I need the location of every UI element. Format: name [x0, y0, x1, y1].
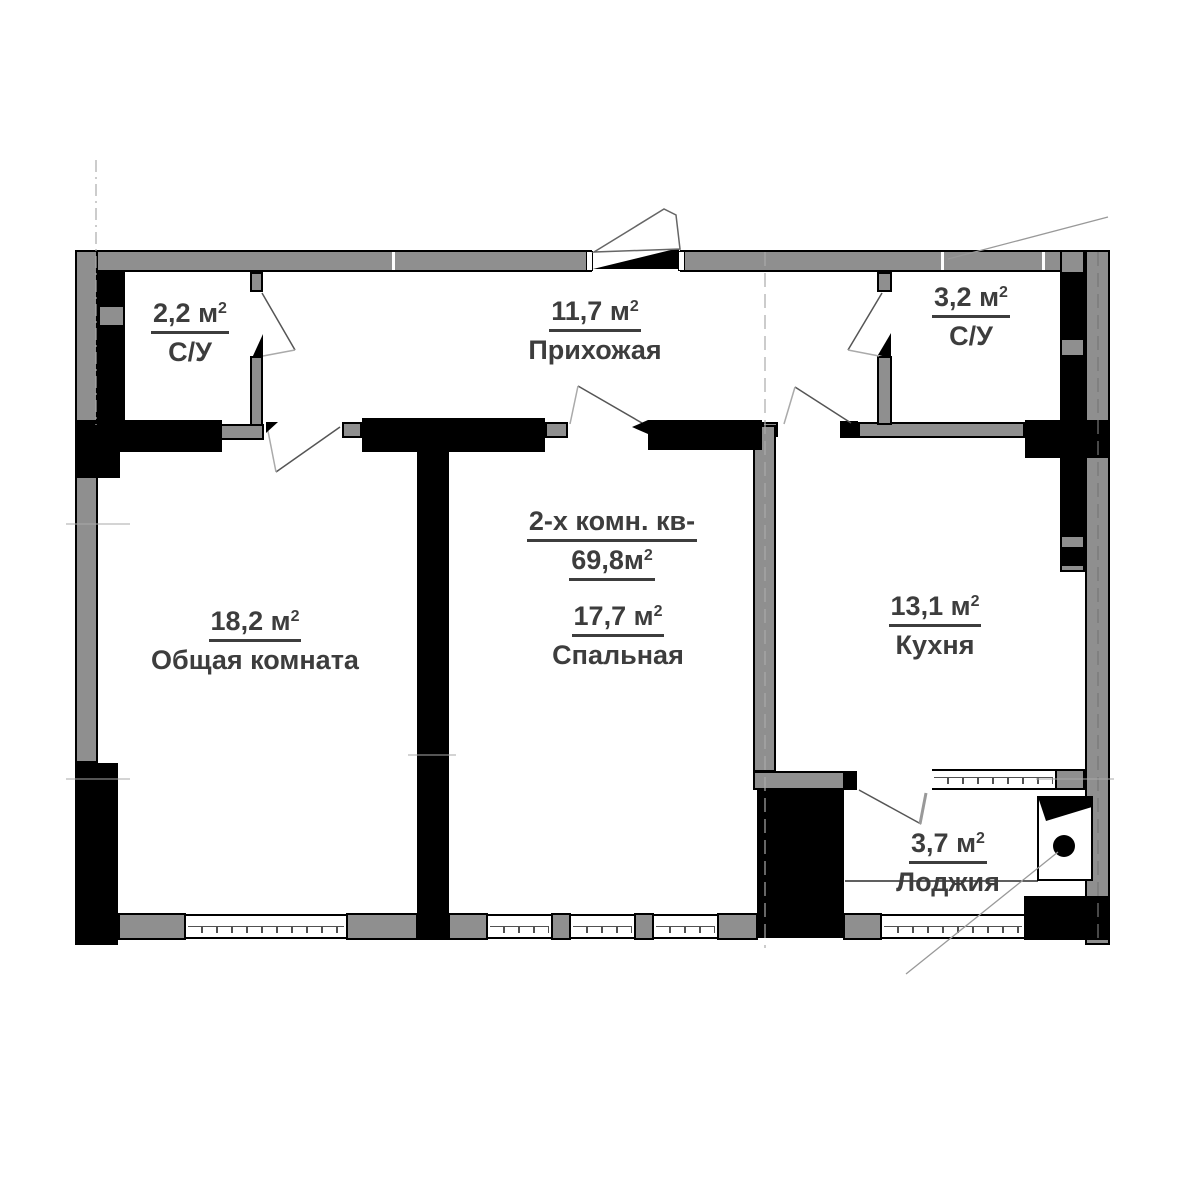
bottom-wall-mullion1 [551, 913, 571, 940]
drain-pipe-icon [1053, 835, 1075, 857]
entrance-door-open-leaf [594, 209, 680, 252]
room-area-loggia: 3,7 м2 [848, 828, 1048, 864]
floor-plan: 2,2 м2 С/У 11,7 м2 Прихожая 3,2 м2 С/У 2… [0, 0, 1181, 1181]
room-area-kitchen: 13,1 м2 [835, 591, 1035, 627]
living-door-wedge [266, 422, 278, 433]
wall-top-right [680, 250, 1110, 272]
room-area-wc2: 3,2 м2 [871, 282, 1071, 318]
right-wall-duct3 [1062, 458, 1083, 537]
living-door-jamb-block [342, 422, 362, 438]
living-door-arc [268, 431, 276, 472]
room-label-hallway: 11,7 м2 Прихожая [495, 296, 695, 367]
living-door-leaf [276, 427, 340, 472]
bottom-wall-seg1 [118, 913, 186, 940]
room-area-living: 18,2 м2 [125, 606, 385, 642]
bath1-bottom-wall [75, 420, 222, 452]
room-label-kitchen: 13,1 м2 Кухня [835, 591, 1035, 662]
room-name-wc2: С/У [871, 321, 1071, 353]
loggia-fixture-flap [1038, 797, 1092, 821]
loggia-door-jamb [845, 771, 857, 790]
wall-top-left [75, 250, 592, 272]
bottom-right-corner-column [1024, 896, 1110, 940]
kitchen-window [932, 769, 1055, 790]
room-area-wc1: 2,2 м2 [90, 298, 290, 334]
apartment-total-area: 69,8м2 [482, 545, 742, 581]
bedroom-door-jamb-block [545, 422, 568, 438]
vent-shaft [757, 788, 844, 938]
bath1-wall-stub-top [250, 272, 263, 292]
kitchen-door-arc [784, 387, 795, 424]
room-area-bedroom: 17,7 м2 [498, 601, 738, 637]
room-name-wc1: С/У [90, 337, 290, 369]
living-bedroom-wall [417, 418, 449, 940]
window-sill [573, 926, 632, 933]
kitchen-door-leaf [795, 387, 851, 423]
kitchen-door-jamb [840, 421, 858, 438]
entrance-door-leaf-wedge [593, 248, 679, 269]
wall-joint [1042, 252, 1045, 270]
window-sill [188, 926, 344, 933]
window-sill [490, 926, 549, 933]
bottom-wall-seg5 [843, 913, 882, 940]
apartment-type: 2-х комн. кв- [482, 506, 742, 542]
loggia-window [882, 914, 1024, 939]
bath1-wall-corner [218, 424, 264, 440]
room-name-loggia: Лоджия [848, 867, 1048, 899]
loggia-door-arc [920, 793, 926, 824]
room-label-loggia: 3,7 м2 Лоджия [848, 828, 1048, 899]
room-label-bedroom: 17,7 м2 Спальная [498, 601, 738, 672]
bottom-wall-seg3 [448, 913, 488, 940]
wall-joint [941, 252, 944, 270]
room-label-wc1: 2,2 м2 С/У [90, 298, 290, 369]
bottom-wall-seg4 [717, 913, 758, 940]
living-window [186, 914, 346, 939]
room-area-hallway: 11,7 м2 [495, 296, 695, 332]
wall-right-outer [1085, 250, 1110, 945]
right-wall-duct2 [1062, 355, 1083, 420]
bedroom-door-leaf [578, 386, 642, 423]
bedroom-door-arc [570, 386, 578, 424]
window-sill [934, 777, 1053, 784]
apartment-title: 2-х комн. кв- 69,8м2 [482, 506, 742, 581]
entrance-jamb-right [678, 251, 685, 271]
room-name-living: Общая комната [125, 645, 385, 677]
hall-rooms-wall [362, 418, 545, 452]
kitchen-bottom-right-wall [1055, 769, 1085, 790]
bedroom-window2 [571, 914, 634, 939]
bedroom-door-wedge [632, 420, 648, 434]
right-wall-junction [1025, 420, 1110, 458]
left-corner-column [75, 763, 118, 945]
loggia-door-leaf [859, 790, 921, 824]
entrance-jamb-left [586, 251, 593, 271]
room-name-kitchen: Кухня [835, 630, 1035, 662]
wall-joint [392, 252, 395, 270]
bedroom-window3 [654, 914, 717, 939]
bedroom-window1 [488, 914, 551, 939]
bath2-wall-stub-bottom [877, 356, 892, 425]
room-name-bedroom: Спальная [498, 640, 738, 672]
bottom-wall-seg2 [346, 913, 418, 940]
right-wall-duct4 [1062, 547, 1083, 566]
window-sill [656, 926, 715, 933]
window-sill [884, 926, 1022, 933]
hall-wall-black-mid [648, 420, 762, 450]
room-name-hallway: Прихожая [495, 335, 695, 367]
room-label-living: 18,2 м2 Общая комната [125, 606, 385, 677]
bedroom-kitchen-wall [753, 425, 776, 772]
room-label-wc2: 3,2 м2 С/У [871, 282, 1071, 353]
bath1-bottom-wall2 [75, 452, 120, 478]
bottom-wall-mullion2 [634, 913, 654, 940]
